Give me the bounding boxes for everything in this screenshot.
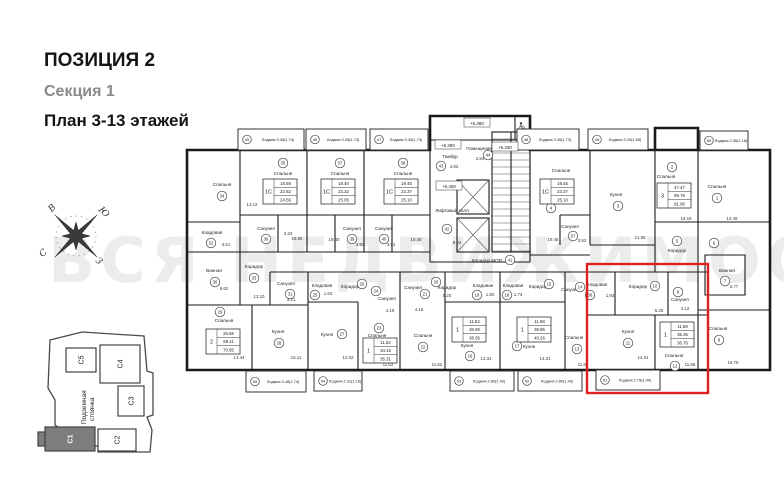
area-value: 24.56 [280, 197, 291, 202]
page-title: ПОЗИЦИЯ 2 [44, 50, 189, 72]
site-plan: Подземная стоянка С5С4С3С2С1 [38, 332, 153, 452]
elevation-label: +6.380 [470, 121, 484, 126]
loggia-label: Лоджия 3.45(1.73) [327, 137, 360, 142]
area-value: 23.37 [401, 189, 412, 194]
room-label: Кухня [622, 329, 635, 334]
room-number: 40 [382, 237, 387, 242]
room-label: Спальня [368, 333, 387, 338]
compass-rose: В Ю С З [38, 202, 111, 267]
room-number: 44 [486, 153, 491, 158]
room-label: Кухня [461, 343, 474, 348]
area-value: 23.32 [338, 189, 349, 194]
dimension-label: 1.82 [486, 292, 495, 297]
room-number: 21 [423, 292, 428, 297]
room-label: Спальня [709, 326, 728, 331]
apartment-type: 1С [386, 190, 393, 196]
loggia-label: Лоджия 3.48(1.74) [262, 137, 295, 142]
dimension-label: 12.02 [343, 355, 355, 360]
room-number: 16 [505, 293, 510, 298]
elevation-label: +6.400 [442, 184, 456, 189]
room-label: Спальня [215, 318, 234, 323]
room-number: 15 [547, 282, 552, 287]
compass-west-label: З [93, 256, 104, 267]
dimension-label: 8.92 [453, 240, 462, 245]
loggia-number: 55 [253, 379, 258, 384]
site-section-label: С2 [115, 435, 122, 444]
room-label: Кухня [272, 329, 285, 334]
room-label: Спальня [552, 168, 571, 173]
room-number: 41 [508, 258, 513, 263]
room-label: Кладовая [473, 283, 494, 288]
compass-north-label: С [38, 248, 50, 260]
room-label: Санузел [378, 296, 396, 301]
area-value: 40.26 [534, 335, 545, 340]
area-value: 38.86 [534, 327, 545, 332]
dimension-label: 4.51 [222, 242, 231, 247]
room-label: Ванная [206, 268, 222, 273]
loggia-number: 45 [245, 137, 250, 142]
header: ПОЗИЦИЯ 2 Секция 1 План 3-13 этажей [44, 50, 189, 131]
room-number: 42 [445, 227, 450, 232]
area-value: 22.82 [280, 189, 291, 194]
room-number: 28 [277, 341, 282, 346]
area-value: 19.45 [401, 181, 412, 186]
loggia-number: 48 [524, 137, 529, 142]
loggia-label: Лоджия 3.45(1.73) [539, 137, 572, 142]
room-label: Лифтовый холл [435, 207, 469, 213]
area-value: 34.15 [380, 348, 391, 353]
parking-label-line1: Подземная [81, 390, 88, 424]
compass-east-label: В [46, 202, 59, 215]
room-number: 43 [439, 164, 444, 169]
loggia-label: Лоджия 3.48(1.74) [267, 379, 300, 384]
dimension-label: 15.11 [291, 355, 302, 360]
room-number: 11 [626, 341, 631, 346]
dimension-label: 13.44 [234, 355, 246, 360]
room-number: 34 [220, 194, 225, 199]
elevator-cross-marks [457, 180, 489, 252]
compass-star [55, 215, 97, 257]
dimension-label: 16.19 [681, 216, 693, 221]
dimension-label: 14.31 [638, 355, 650, 360]
room-number: 27 [340, 332, 345, 337]
dimension-label: 1.63 [324, 291, 333, 296]
dimension-label: 4.19 [386, 308, 395, 313]
room-label: Спальня [394, 171, 413, 176]
area-value: 23.37 [557, 189, 568, 194]
area-value: 35.31 [380, 356, 391, 361]
room-label: Ванная [719, 268, 735, 273]
dimension-label: 3.21 [287, 297, 296, 302]
room-label: Спальня [213, 182, 232, 187]
room-label: Кладовая [312, 283, 333, 288]
room-label: Спальня [331, 171, 350, 176]
loggia-label: Лоджия 2.80(1.40) [473, 379, 506, 384]
area-value: 89.76 [674, 193, 685, 198]
dimension-label: 11.52 [432, 362, 443, 367]
loggia-number: 47 [377, 137, 382, 142]
room-label: Санузел [404, 285, 422, 290]
dimension-label: 2.84 [476, 156, 485, 161]
dimension-label: 1.93 [606, 293, 615, 298]
loggia-label: Лоджия 2.36(1.18) [715, 138, 748, 143]
room-label: Кладовая [587, 282, 608, 287]
dimension-label: 19.45 [548, 237, 560, 242]
loggia-number: 53 [457, 379, 462, 384]
room-number: 32 [209, 241, 214, 246]
apartment-type: 1 [521, 328, 524, 334]
room-label: Кухня [610, 192, 623, 197]
room-number: 57 [571, 234, 576, 239]
site-section-label: С1 [68, 434, 75, 443]
room-number: 31 [288, 292, 293, 297]
dimension-label: 21.55 [635, 235, 647, 240]
section-subtitle: Секция 1 [44, 83, 189, 101]
room-label: Кухня [321, 332, 334, 337]
room-label: Коридор [668, 248, 687, 253]
elevation-label: +6.330 [498, 145, 512, 150]
dimension-label: 4.12 [681, 306, 690, 311]
loggia-number: 49 [595, 137, 600, 142]
dimension-label: 19.45 [411, 237, 423, 242]
loggia-label: Лоджия 3.45(1.73) [390, 137, 423, 142]
dimension-label: 16.79 [728, 360, 740, 365]
dimension-label: 13.12 [247, 202, 259, 207]
dimension-label: 6.62 [220, 286, 229, 291]
dimension-label: 4.82 [450, 164, 459, 169]
room-number: 13 [575, 347, 580, 352]
area-value: 11.52 [469, 319, 480, 324]
dimension-label: 19.40 [329, 237, 341, 242]
area-value: 35.36 [677, 332, 688, 337]
room-number: 12 [673, 364, 678, 369]
loggia-number: 54 [321, 379, 326, 384]
area-value: 19.45 [557, 181, 568, 186]
area-value: 26.56 [223, 331, 234, 336]
room-label: Спальня [657, 174, 676, 179]
loggia-label: Лоджия 2.79(1.40) [619, 378, 652, 383]
room-number: 17 [515, 344, 520, 349]
area-value: 11.52 [380, 340, 391, 345]
room-number: 56 [588, 293, 593, 298]
dimension-label: 14.31 [481, 356, 493, 361]
dimension-label: 3.92 [387, 242, 396, 247]
room-label: Спальня [565, 335, 584, 340]
dimension-label: 18.59 [292, 236, 304, 241]
apartment-type: 1С [323, 190, 330, 196]
outer-wall-tower [655, 128, 698, 150]
room-number: 14 [578, 285, 583, 290]
room-label: Санузел [671, 297, 689, 302]
room-label: Коридор [245, 264, 264, 269]
room-label: Тамбур [442, 154, 458, 159]
room-number: 24 [374, 289, 379, 294]
floor-plan-labels: Спальня34Спальня35Спальня37Спальня38Спал… [202, 118, 748, 393]
room-label: Санузел [257, 226, 275, 231]
area-value: 47.47 [674, 185, 685, 190]
area-value: 36.76 [677, 340, 688, 345]
apartment-type: 2 [210, 340, 213, 346]
dimension-label: 13.10 [254, 294, 266, 299]
plan-subtitle: План 3-13 этажей [44, 111, 189, 131]
area-value: 11.68 [677, 324, 688, 329]
room-number: 22 [421, 345, 426, 350]
dimension-label: 5.25 [655, 308, 664, 313]
room-number: 33 [252, 276, 257, 281]
apartment-type: 3 [661, 194, 664, 200]
room-label: Коридор [438, 285, 457, 290]
room-number: 10 [653, 284, 658, 289]
room-label: Коридор МОП [472, 258, 502, 263]
room-number: 39 [350, 237, 355, 242]
parking-label-line2: стоянка [89, 397, 96, 421]
dimension-label: 5.20 [443, 293, 452, 298]
dimension-label: 11.68 [685, 362, 696, 367]
room-number: 36 [264, 237, 269, 242]
room-label: Санузел [561, 224, 579, 229]
loggia-number: 52 [525, 379, 530, 384]
loggia-number: 50 [707, 138, 712, 143]
area-value: 25.10 [401, 197, 412, 202]
room-number: 26 [360, 282, 365, 287]
apartment-type: 1С [265, 190, 272, 196]
room-label: Коридор [629, 284, 648, 289]
room-label: Спальня [665, 353, 684, 358]
room-label: Санузел [277, 281, 295, 286]
area-value: 25.10 [557, 197, 568, 202]
loggia-number: 51 [603, 378, 608, 383]
dimension-label: 3.92 [578, 238, 587, 243]
room-label: Кухня [523, 344, 536, 349]
dimension-label: 3.92 [356, 242, 365, 247]
room-number: 19 [475, 293, 480, 298]
site-section-label: С3 [129, 396, 136, 405]
area-value: 91.95 [674, 201, 685, 206]
area-value: 18.59 [280, 181, 291, 186]
room-label: Спальня [274, 171, 293, 176]
area-value: 38.36 [469, 335, 480, 340]
room-number: 29 [218, 310, 223, 315]
dimension-label: 14.31 [540, 356, 552, 361]
room-number: 18 [468, 354, 473, 359]
room-number: 38 [401, 161, 406, 166]
room-number: 23 [377, 326, 382, 331]
room-label: Кладовая [202, 230, 223, 235]
apartment-type: 1С [542, 190, 549, 196]
compass-south-label: Ю [95, 205, 111, 221]
apartment-type: 1 [664, 333, 667, 339]
apartment-type: 1 [456, 328, 459, 334]
room-label: Кладовая [503, 283, 524, 288]
room-number: 30 [213, 280, 218, 285]
dimension-label: 1.73 [514, 292, 523, 297]
area-value: 69.11 [223, 339, 234, 344]
area-value: 19.40 [338, 181, 349, 186]
elevation-label: +6.390 [441, 143, 455, 148]
room-number: 35 [281, 161, 286, 166]
room-label: Спальня [414, 333, 433, 338]
dimension-label: 14.49 [727, 216, 739, 221]
room-label: Коридор [341, 284, 360, 289]
loggia-label: Лоджия 3.29(1.65) [609, 137, 642, 142]
loggia-label: Лоджия 2.80(1.40) [541, 379, 574, 384]
room-number: 37 [338, 161, 343, 166]
room-label: Спальня [708, 184, 727, 189]
area-value: 70.85 [223, 347, 234, 352]
dimension-label: 4.15 [415, 307, 424, 312]
room-number: 25 [313, 293, 318, 298]
area-value: 25.05 [338, 197, 349, 202]
apartment-type: 1 [367, 349, 370, 355]
site-section-label: С4 [118, 359, 125, 368]
area-value: 11.68 [534, 319, 545, 324]
room-label: Санузел [343, 226, 361, 231]
room-number: 20 [434, 280, 439, 285]
area-value: 36.96 [469, 327, 480, 332]
floorplan-page: ВСЯ НЕДВИЖИМОСТЬ ПОЗИЦИЯ 2 Секция 1 План… [0, 0, 784, 500]
loggia-number: 46 [313, 137, 318, 142]
room-label: Санузел [375, 226, 393, 231]
site-section-label: С5 [79, 355, 86, 364]
dimension-label: 3.77 [730, 284, 739, 289]
loggia-label: Лоджия 2.31(1.16) [329, 379, 362, 384]
